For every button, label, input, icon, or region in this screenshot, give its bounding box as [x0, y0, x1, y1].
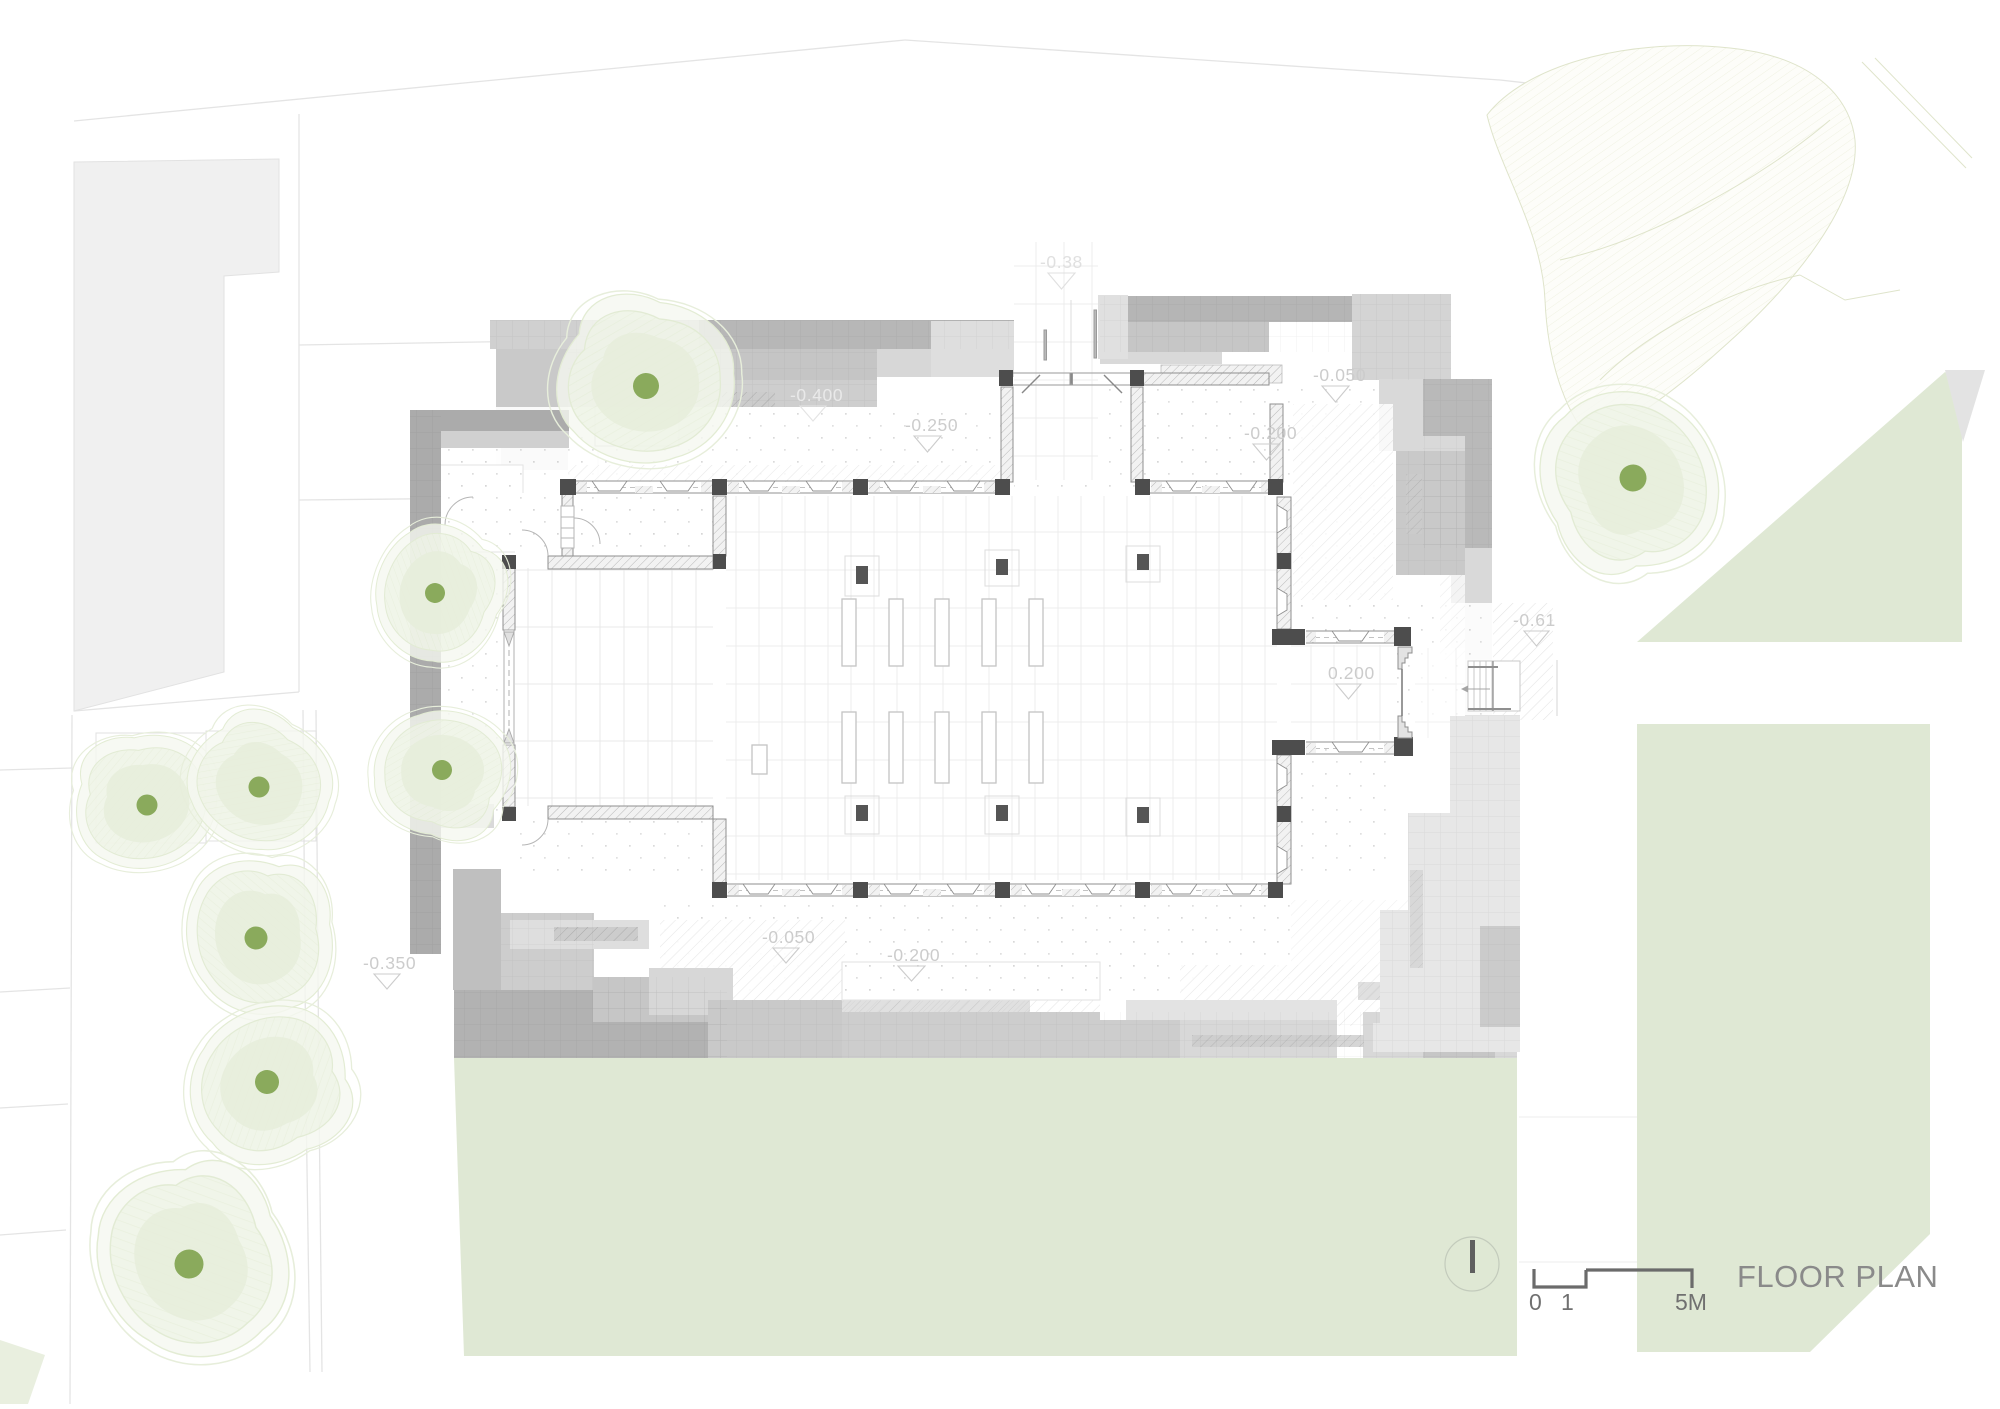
svg-text:5M: 5M	[1675, 1289, 1707, 1315]
svg-text:-0.350: -0.350	[363, 953, 416, 973]
svg-text:-0.61: -0.61	[1513, 610, 1556, 630]
svg-text:-0.200: -0.200	[887, 945, 940, 965]
svg-text:0: 0	[1529, 1289, 1542, 1315]
svg-text:FLOOR PLAN: FLOOR PLAN	[1737, 1259, 1938, 1294]
svg-text:-0.38: -0.38	[1040, 252, 1083, 272]
svg-text:1: 1	[1561, 1289, 1574, 1315]
svg-text:-0.400: -0.400	[790, 385, 843, 405]
svg-text:-0.050: -0.050	[762, 927, 815, 947]
svg-text:-0.050: -0.050	[1313, 365, 1366, 385]
svg-text:-0.250: -0.250	[905, 415, 958, 435]
svg-text:-0.200: -0.200	[1244, 423, 1297, 443]
svg-text:0.200: 0.200	[1328, 663, 1375, 683]
